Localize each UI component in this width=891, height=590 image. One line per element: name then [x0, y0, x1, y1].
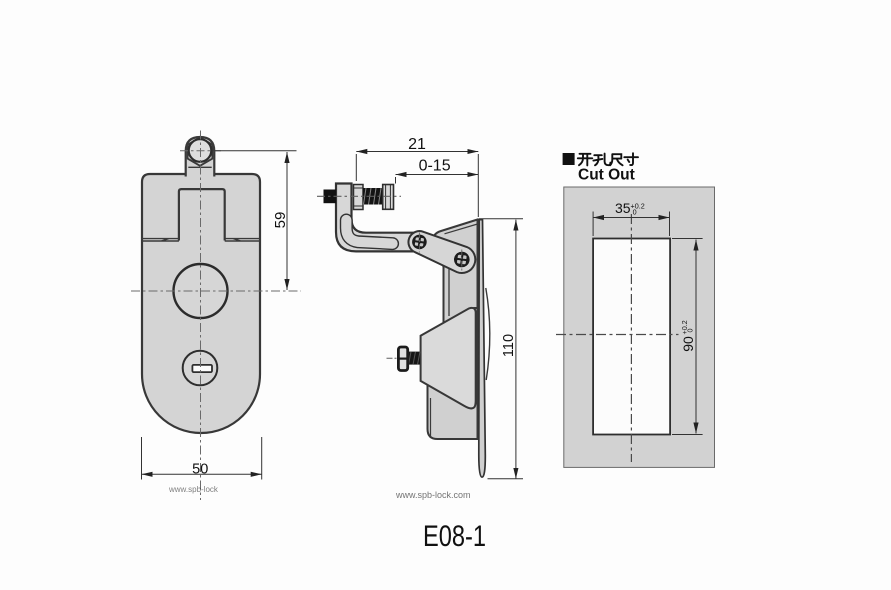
svg-text:0: 0: [633, 207, 637, 216]
svg-text:E08-1: E08-1: [423, 520, 486, 553]
svg-text:0-15: 0-15: [419, 158, 451, 175]
svg-text:59: 59: [272, 212, 289, 229]
svg-text:35: 35: [615, 200, 631, 216]
svg-text:50: 50: [192, 461, 208, 477]
svg-text:110: 110: [501, 334, 517, 357]
svg-text:www.spb-lock.com: www.spb-lock.com: [395, 490, 471, 500]
svg-text:21: 21: [408, 136, 426, 153]
svg-text:Cut Out: Cut Out: [578, 166, 635, 183]
svg-text:www.spb-lock: www.spb-lock: [168, 485, 219, 494]
svg-text:90: 90: [680, 336, 696, 352]
svg-text:0: 0: [686, 329, 695, 333]
